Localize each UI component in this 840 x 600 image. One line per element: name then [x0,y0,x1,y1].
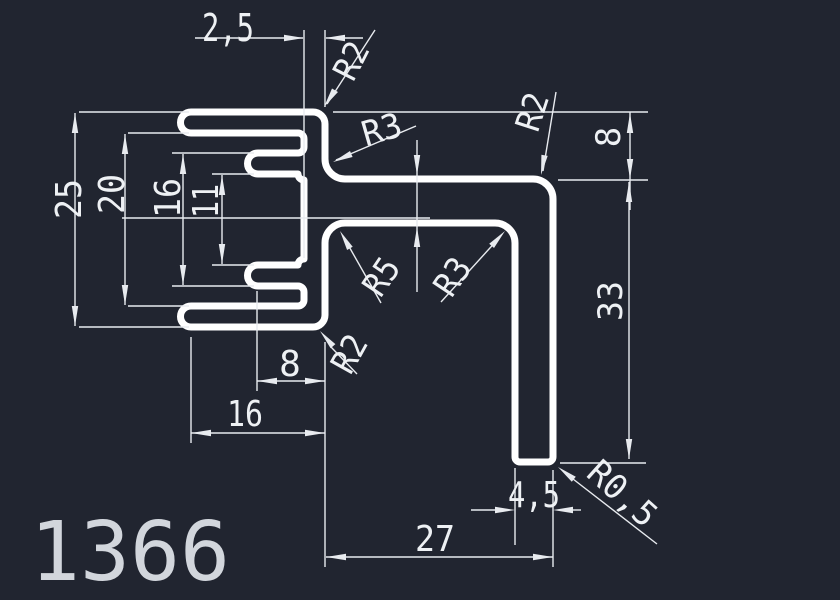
cad-viewport[interactable]: 2,5 R2 R3 R2 8 33 R0,5 4,5 27 R2 R5 R3 8… [0,0,840,600]
radius-r2-bottom-label: R2 [323,328,376,381]
dim-h11-label: 11 [186,184,227,218]
dim-teeth16-label: 16 [227,394,263,435]
radius-r5-inner-label: R5 [355,250,409,304]
dim-foot45-label: 4,5 [508,475,560,516]
dim-h16-label: 16 [148,178,189,218]
dim-thickness-label: 2,5 [202,6,254,50]
extension-lines [79,30,648,567]
dim-tab8-label: 8 [279,344,301,385]
dim-arm33-label: 33 [591,281,631,321]
radius-r3-inner-label: R3 [426,250,480,304]
dim-h20-label: 20 [92,174,133,214]
radius-r2-top-label: R2 [326,35,379,87]
dim-width27-label: 27 [415,519,455,560]
dim-h25-label: 25 [49,179,90,219]
dim-offset8-label: 8 [589,127,629,147]
part-number: 1366 [30,505,230,600]
technical-drawing: 2,5 R2 R3 R2 8 33 R0,5 4,5 27 R2 R5 R3 8… [0,0,840,600]
